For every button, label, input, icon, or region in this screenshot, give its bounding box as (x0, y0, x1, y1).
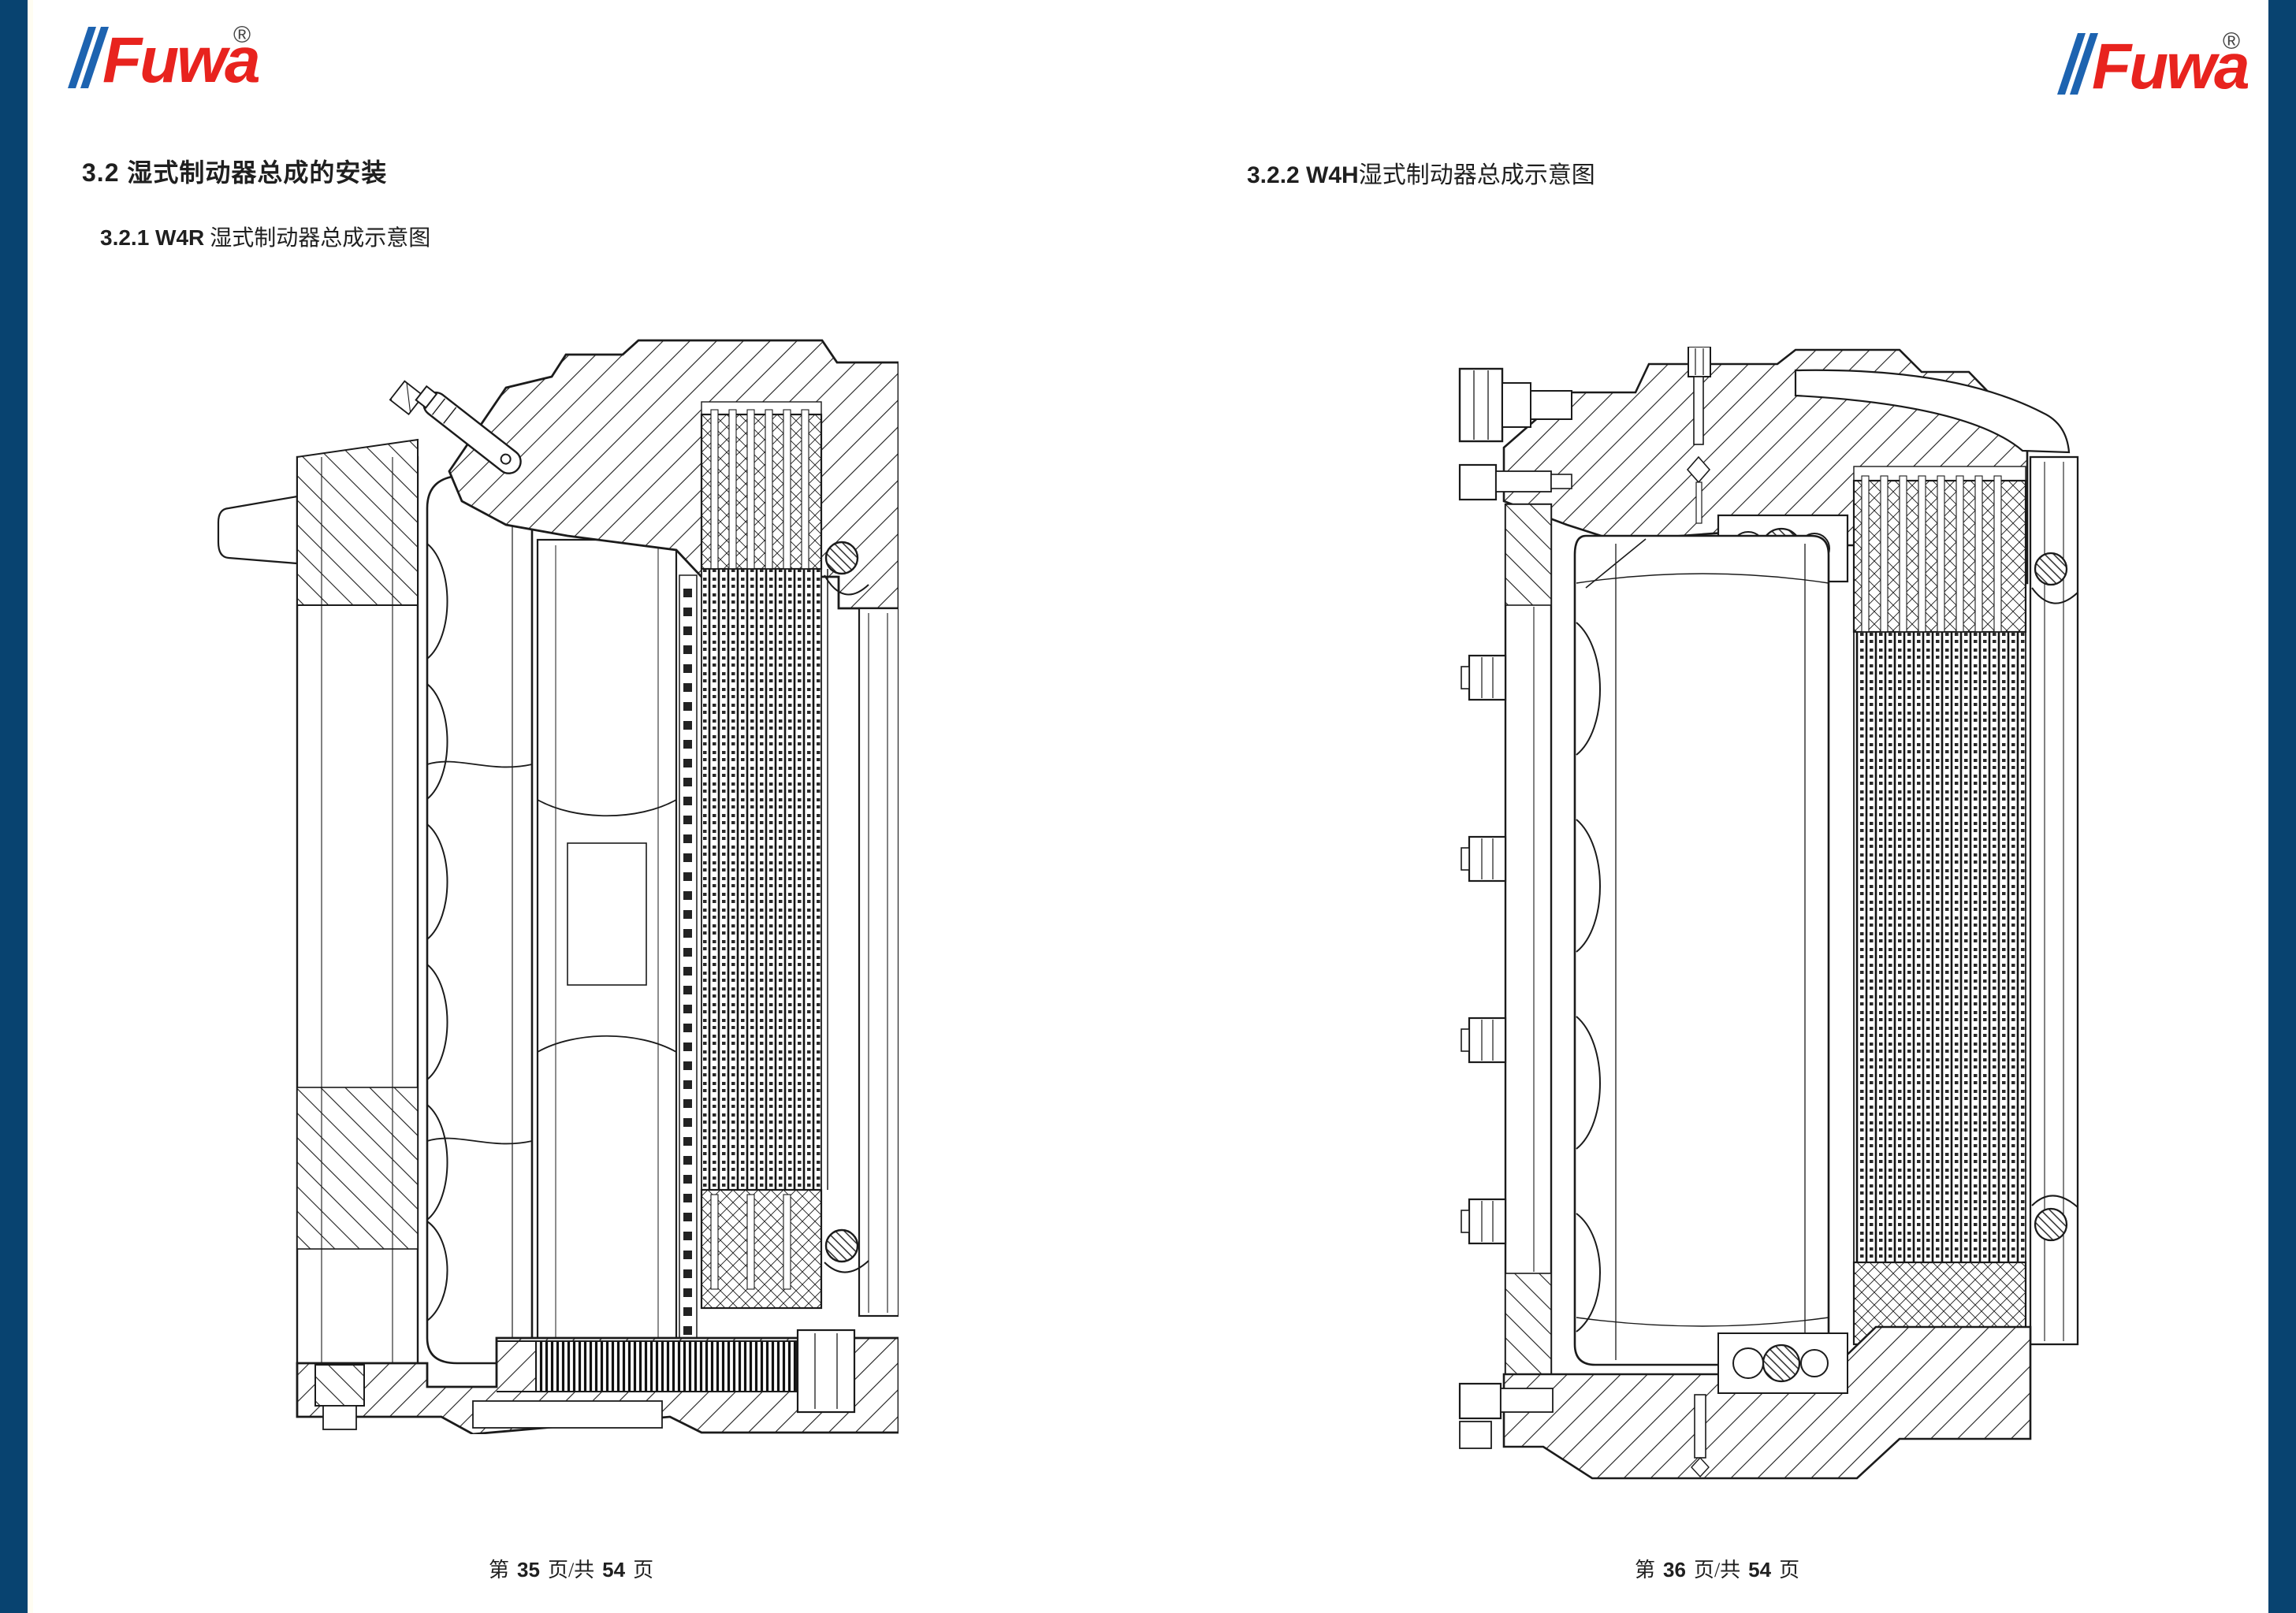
fuwa-logo: Fuwa ® (2051, 20, 2248, 107)
footer-prefix: 第 (487, 1559, 511, 1581)
disc-pack-lower-chevron (701, 1190, 821, 1308)
registered-mark: ® (2223, 28, 2240, 54)
subsection-title: 湿式制动器总成示意图 (1359, 162, 1595, 188)
spline-shaft (536, 1341, 796, 1392)
hex-bolt (1461, 837, 1505, 881)
w4h-drawing (1458, 347, 2081, 1489)
subsection-heading-w4h: 3.2.2 W4H湿式制动器总成示意图 (1247, 155, 1595, 190)
wheel-flange (297, 440, 418, 1363)
spline-rack (679, 575, 697, 1363)
w4r-cross-section-figure (197, 339, 899, 1434)
footer-page-number: 36 (1657, 1558, 1692, 1581)
subsection-number: 3.2.1 W4R (100, 225, 204, 250)
o-ring-seal-upper (826, 542, 858, 574)
page-footer-left: 第35页/共54页 (487, 1554, 655, 1583)
footer-suffix: 页 (631, 1559, 655, 1581)
fuwa-logo: Fuwa ® (61, 14, 259, 101)
footer-suffix: 页 (1777, 1559, 1801, 1581)
hex-bolt (1461, 656, 1505, 700)
footer-total-pages: 54 (1742, 1558, 1777, 1581)
section-heading: 3.2 湿式制动器总成的安装 (82, 153, 387, 189)
footer-page-number: 35 (511, 1558, 546, 1581)
fuwa-logo-graphic: Fuwa ® (61, 14, 259, 101)
manual-spread: Fuwa ® Fuwa ® 3.2 湿式制动器总成的安装 3.2.1 W4R 湿… (0, 0, 2296, 1613)
stud-bolt (315, 1365, 364, 1406)
w4h-cross-section-figure (1458, 347, 2081, 1489)
left-housing-wall (1461, 504, 1551, 1374)
shaft-hex-nut (798, 1330, 854, 1412)
subsection-title: 湿式制动器总成示意图 (204, 226, 430, 251)
page-footer-right: 第36页/共54页 (1633, 1554, 1801, 1583)
right-accent-bar (2268, 0, 2296, 1613)
piston-sleeve (538, 540, 676, 1347)
subsection-number: 3.2.2 W4H (1247, 162, 1359, 188)
drain-stem (1695, 1395, 1706, 1458)
friction-disc-pack (701, 402, 828, 1308)
o-ring-seal-lower (2035, 1209, 2067, 1240)
base-pocket (473, 1401, 662, 1428)
outer-cylinder-wall (824, 542, 899, 1316)
fuwa-logo-graphic: Fuwa ® (2051, 20, 2248, 107)
hex-bolt (1461, 1018, 1505, 1062)
subsection-heading-w4r: 3.2.1 W4R 湿式制动器总成示意图 (100, 221, 430, 252)
scan-tint-strip (28, 0, 33, 1613)
disc-plates (1854, 632, 2026, 1262)
hex-bolt (1461, 1199, 1505, 1243)
o-ring-seal-upper (2035, 553, 2067, 585)
left-accent-bar (0, 0, 28, 1613)
friction-disc-pack (1854, 466, 2026, 1344)
outer-cylinder-wall (2030, 457, 2078, 1344)
w4r-drawing (197, 339, 899, 1434)
footer-middle: 页/共 (1692, 1559, 1742, 1581)
hub-lip (218, 496, 297, 563)
footer-total-pages: 54 (596, 1558, 631, 1581)
footer-middle: 页/共 (546, 1559, 596, 1581)
registered-mark: ® (233, 22, 251, 48)
o-ring-seal-lower (826, 1230, 858, 1262)
footer-prefix: 第 (1633, 1559, 1657, 1581)
disc-plates (701, 569, 821, 1190)
piston-cylinder (1575, 536, 1829, 1365)
hub-drum (427, 473, 532, 1363)
